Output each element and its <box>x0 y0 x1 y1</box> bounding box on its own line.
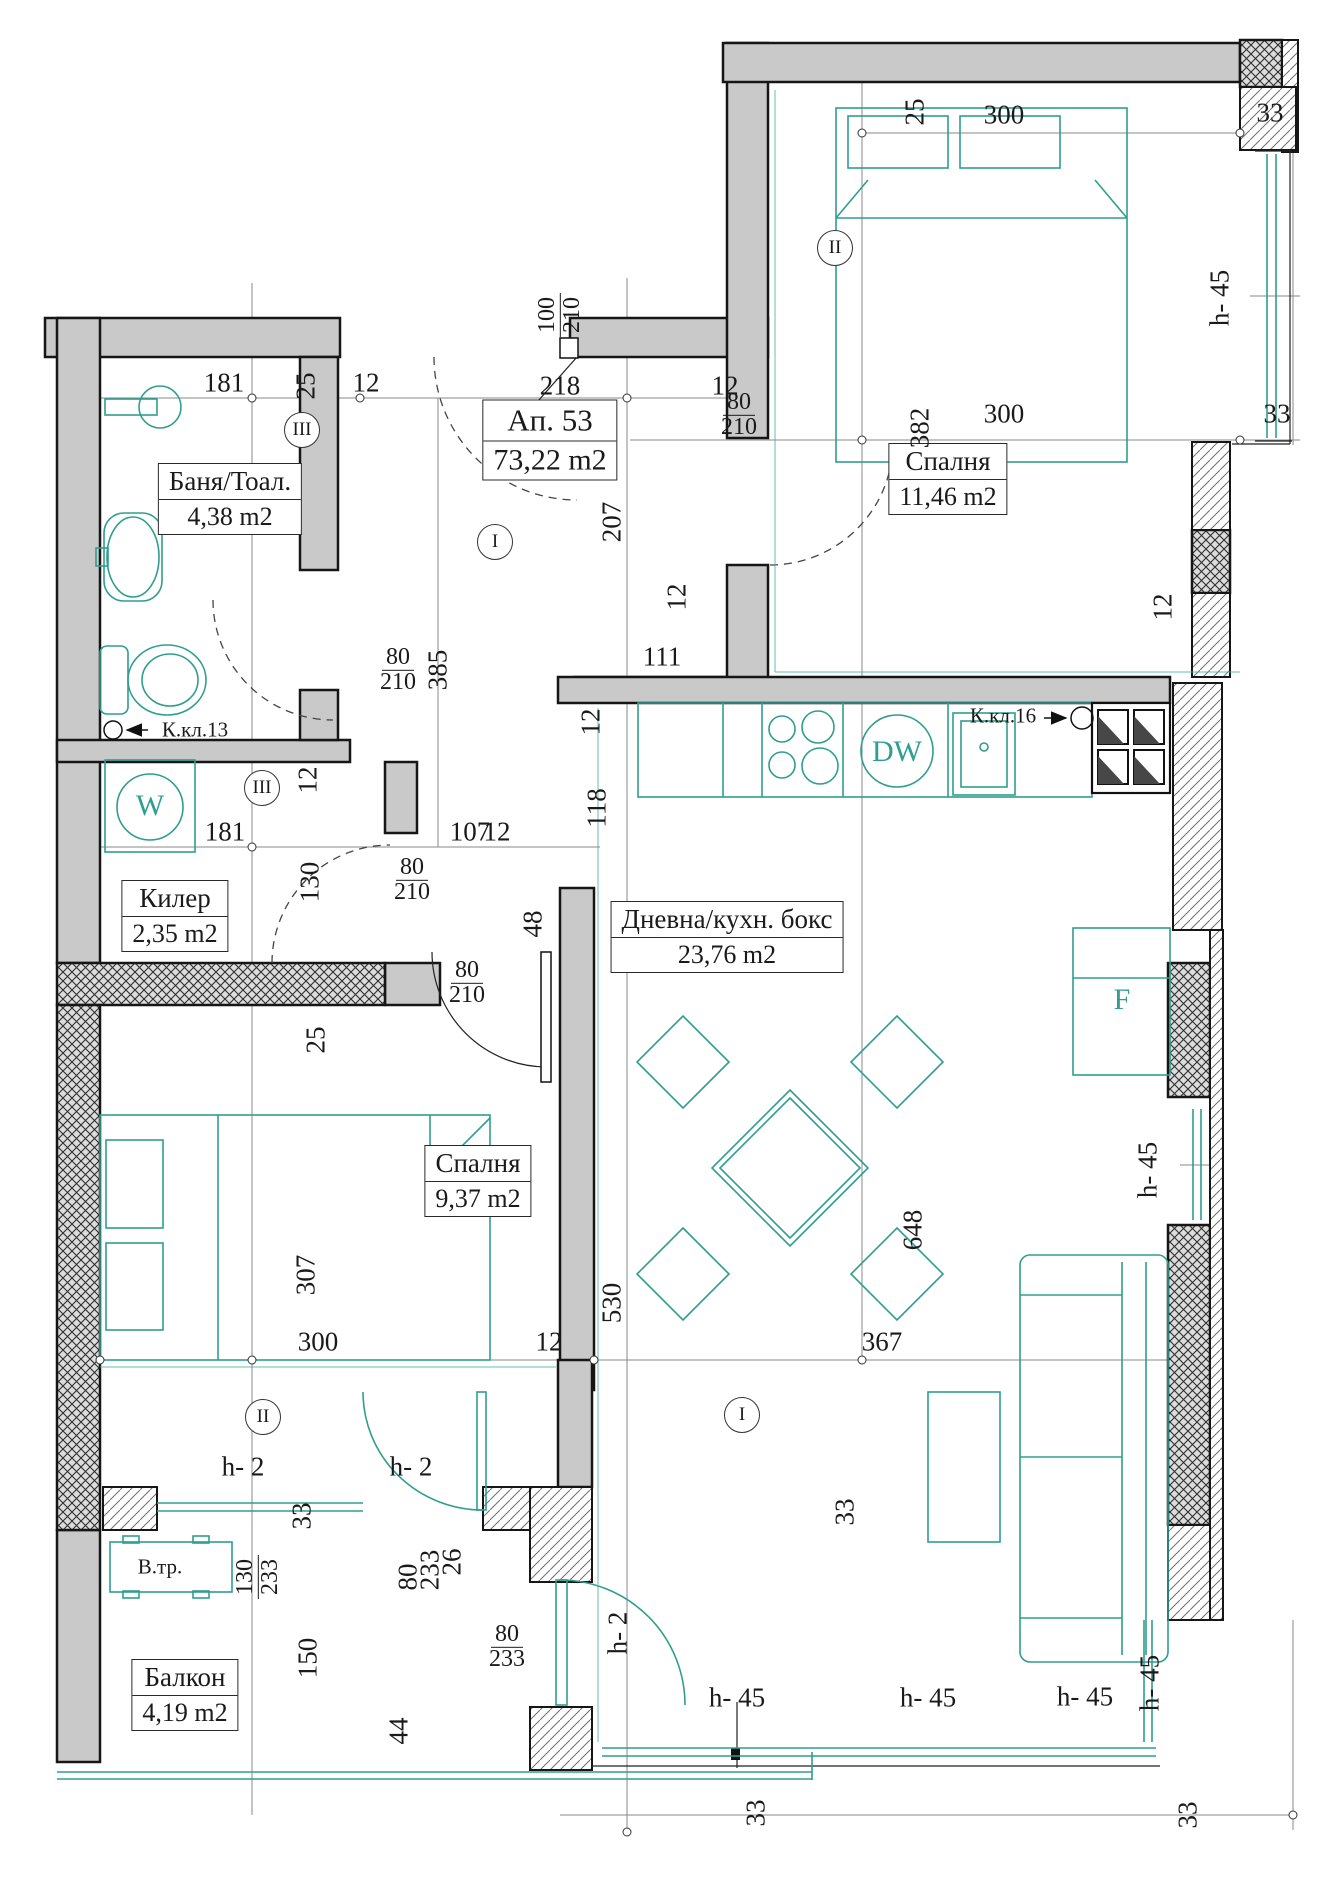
room-label-closet: Килер 2,35 m2 <box>121 880 228 952</box>
dimension-label: 80210 <box>721 390 757 440</box>
apartment-title-box: Ап. 53 73,22 m2 <box>482 400 617 481</box>
dimension-label: 307 <box>291 1255 322 1296</box>
dimension-label: h- 2 <box>222 1452 265 1483</box>
dimension-label: 25 <box>291 373 322 400</box>
ventilation-shaft <box>1092 703 1170 793</box>
side-table-icon <box>928 1392 1000 1542</box>
sink-icon <box>104 513 162 601</box>
stove-burner-icon <box>802 748 838 784</box>
washer-label: W <box>136 789 164 823</box>
apartment-area: 73,22 m2 <box>483 442 616 480</box>
toilet-icon <box>100 646 128 714</box>
dimension-label: 218 <box>540 371 581 402</box>
bed-bedroom2-icon <box>836 108 1127 462</box>
axis-marker-III: III <box>284 412 320 448</box>
dimension-label: 33 <box>287 1503 318 1530</box>
dimension-label: 385 <box>423 650 454 691</box>
dimension-label: 181 <box>205 817 246 848</box>
room-name: Балкон <box>132 1660 237 1696</box>
room-label-balcony: Балкон 4,19 m2 <box>131 1659 238 1731</box>
bathroom-fixtures <box>96 386 206 715</box>
axis-marker-II: II <box>817 230 853 266</box>
kkl13-label: К.кл.13 <box>162 718 228 743</box>
floorplan-page: Ап. 53 73,22 m2 Баня/Тоал. 4,38 m2 Килер… <box>0 0 1344 1894</box>
dimension-label: 33 <box>1257 98 1284 129</box>
stove-burner-icon <box>802 711 834 743</box>
stove-burner-icon <box>769 716 795 742</box>
dimension-label: 300 <box>984 399 1025 430</box>
room-label-bedroom2: Спалня 11,46 m2 <box>888 443 1007 515</box>
room-label-bedroom1: Спалня 9,37 m2 <box>424 1145 531 1217</box>
dimension-label: 12 <box>536 1327 563 1358</box>
dimension-label: 130233 <box>233 1555 283 1599</box>
dimension-label: h- 45 <box>1205 270 1236 326</box>
dimension-label: h- 45 <box>1057 1682 1113 1713</box>
dimension-label: 181 <box>204 368 245 399</box>
chair-icon <box>851 1016 943 1108</box>
room-area: 4,38 m2 <box>159 500 301 534</box>
dimension-label: 33 <box>830 1499 861 1526</box>
dimension-label: 111 <box>643 642 682 673</box>
towel-bar-icon <box>105 399 157 415</box>
dimension-label: 367 <box>862 1327 903 1358</box>
axis-marker-III: III <box>244 770 280 806</box>
dimension-label: 12 <box>484 817 511 848</box>
dimension-label: 33 <box>741 1800 772 1827</box>
vtr-label: В.тр. <box>138 1555 182 1580</box>
dimension-label: h- 45 <box>1133 1142 1164 1198</box>
dimension-label: h- 45 <box>1135 1655 1166 1711</box>
room-name: Спалня <box>889 444 1006 480</box>
dimension-label: 207 <box>597 502 628 543</box>
chair-icon <box>637 1016 729 1108</box>
dimension-label: h- 2 <box>390 1452 433 1483</box>
dimension-label: 12 <box>662 584 693 611</box>
room-name: Килер <box>122 881 227 917</box>
dimension-label: h- 2 <box>603 1612 634 1655</box>
room-name: Баня/Тоал. <box>159 464 301 500</box>
room-label-living: Дневна/кухн. бокс 23,76 m2 <box>611 901 844 973</box>
room-name: Дневна/кухн. бокс <box>612 902 843 938</box>
dimension-label: h- 45 <box>709 1683 765 1714</box>
kkl16-label: К.кл.16 <box>970 704 1036 729</box>
dimension-label: 100210 <box>535 293 585 337</box>
room-area: 2,35 m2 <box>122 917 227 951</box>
apartment-number: Ап. 53 <box>483 401 616 442</box>
dimension-label: 44 <box>384 1718 415 1745</box>
dimension-label: 130 <box>295 862 326 903</box>
dimension-label: 12 <box>576 709 607 736</box>
room-name: Спалня <box>425 1146 530 1182</box>
stove-burner-icon <box>769 752 795 778</box>
dimension-label: 25 <box>900 99 931 126</box>
dimension-label: 80233 <box>489 1622 525 1672</box>
dimension-label: 150 <box>293 1638 324 1679</box>
dimension-label: 648 <box>898 1210 929 1251</box>
axis-marker-I: I <box>477 524 513 560</box>
room-area: 11,46 m2 <box>889 480 1006 514</box>
dimension-label: 300 <box>298 1327 339 1358</box>
dimension-label: h- 45 <box>900 1683 956 1714</box>
dimension-label: 12 <box>1148 594 1179 621</box>
dimension-label: 12 <box>353 368 380 399</box>
room-area: 4,19 m2 <box>132 1696 237 1730</box>
fridge-label: F <box>1114 983 1131 1017</box>
dimension-label: 118 <box>582 788 613 828</box>
room-label-bath: Баня/Тоал. 4,38 m2 <box>158 463 302 535</box>
dimension-label: 26 <box>437 1549 468 1576</box>
axis-marker-I: I <box>724 1397 760 1433</box>
chair-icon <box>637 1228 729 1320</box>
dimension-label: 12 <box>293 767 324 794</box>
dimension-label: 25 <box>301 1027 332 1054</box>
dimension-label: 80210 <box>380 645 416 695</box>
dimension-label: 382 <box>905 408 936 449</box>
dishwasher-label: DW <box>872 735 922 769</box>
dimension-label: 33 <box>1173 1802 1204 1829</box>
dining-table-icon <box>637 1016 943 1320</box>
dimension-label: 33 <box>1264 399 1291 430</box>
dimension-label: 80210 <box>449 958 485 1008</box>
dimension-label: 300 <box>984 100 1025 131</box>
dimension-label: 48 <box>518 911 549 938</box>
sofa-icon <box>928 1255 1168 1662</box>
dimension-label: 80210 <box>394 855 430 905</box>
window-junction <box>731 1748 740 1760</box>
dimension-label: 530 <box>597 1283 628 1324</box>
room-area: 23,76 m2 <box>612 938 843 972</box>
room-area: 9,37 m2 <box>425 1182 530 1216</box>
axis-marker-II: II <box>245 1399 281 1435</box>
